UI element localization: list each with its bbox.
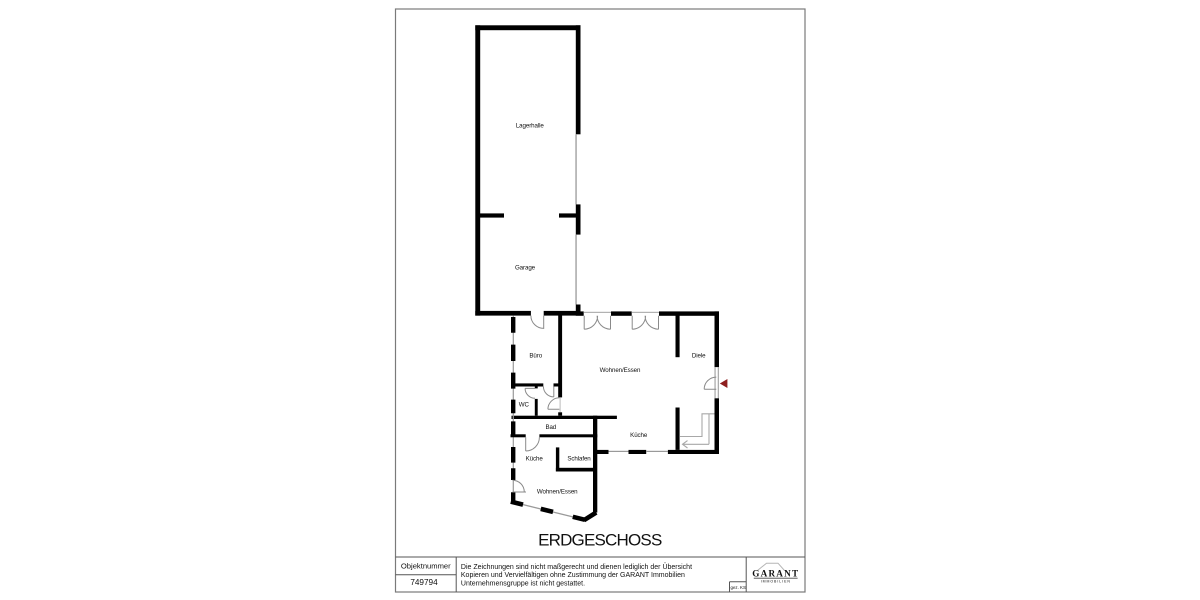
svg-text:Wohnen/Essen: Wohnen/Essen xyxy=(600,367,641,374)
svg-text:Diele: Diele xyxy=(692,352,706,359)
svg-text:Büro: Büro xyxy=(529,352,542,359)
svg-text:Küche: Küche xyxy=(630,432,648,439)
svg-text:Kopieren und Vervielfältigen o: Kopieren und Vervielfältigen ohne Zustim… xyxy=(461,572,685,579)
svg-text:ERDGESCHOSS: ERDGESCHOSS xyxy=(538,530,662,549)
svg-text:WC: WC xyxy=(519,402,530,409)
svg-text:749794: 749794 xyxy=(410,578,438,587)
svg-text:Die Zeichnungen sind nicht maß: Die Zeichnungen sind nicht maßgerecht un… xyxy=(461,563,692,571)
svg-text:Lagerhalle: Lagerhalle xyxy=(516,123,545,130)
svg-text:Bad: Bad xyxy=(545,424,556,431)
svg-text:Küche: Küche xyxy=(526,455,544,462)
svg-text:gez. KS: gez. KS xyxy=(731,585,746,590)
svg-text:Garage: Garage xyxy=(515,264,536,271)
svg-text:Objektnummer: Objektnummer xyxy=(401,562,451,571)
svg-text:GARANT: GARANT xyxy=(752,568,799,578)
svg-text:Unternehmensgruppe ist nicht g: Unternehmensgruppe ist nicht gestattet. xyxy=(461,580,585,587)
svg-text:Schlafen: Schlafen xyxy=(567,455,591,462)
svg-text:Wohnen/Essen: Wohnen/Essen xyxy=(537,488,578,495)
svg-text:IMMOBILIEN: IMMOBILIEN xyxy=(761,579,791,583)
